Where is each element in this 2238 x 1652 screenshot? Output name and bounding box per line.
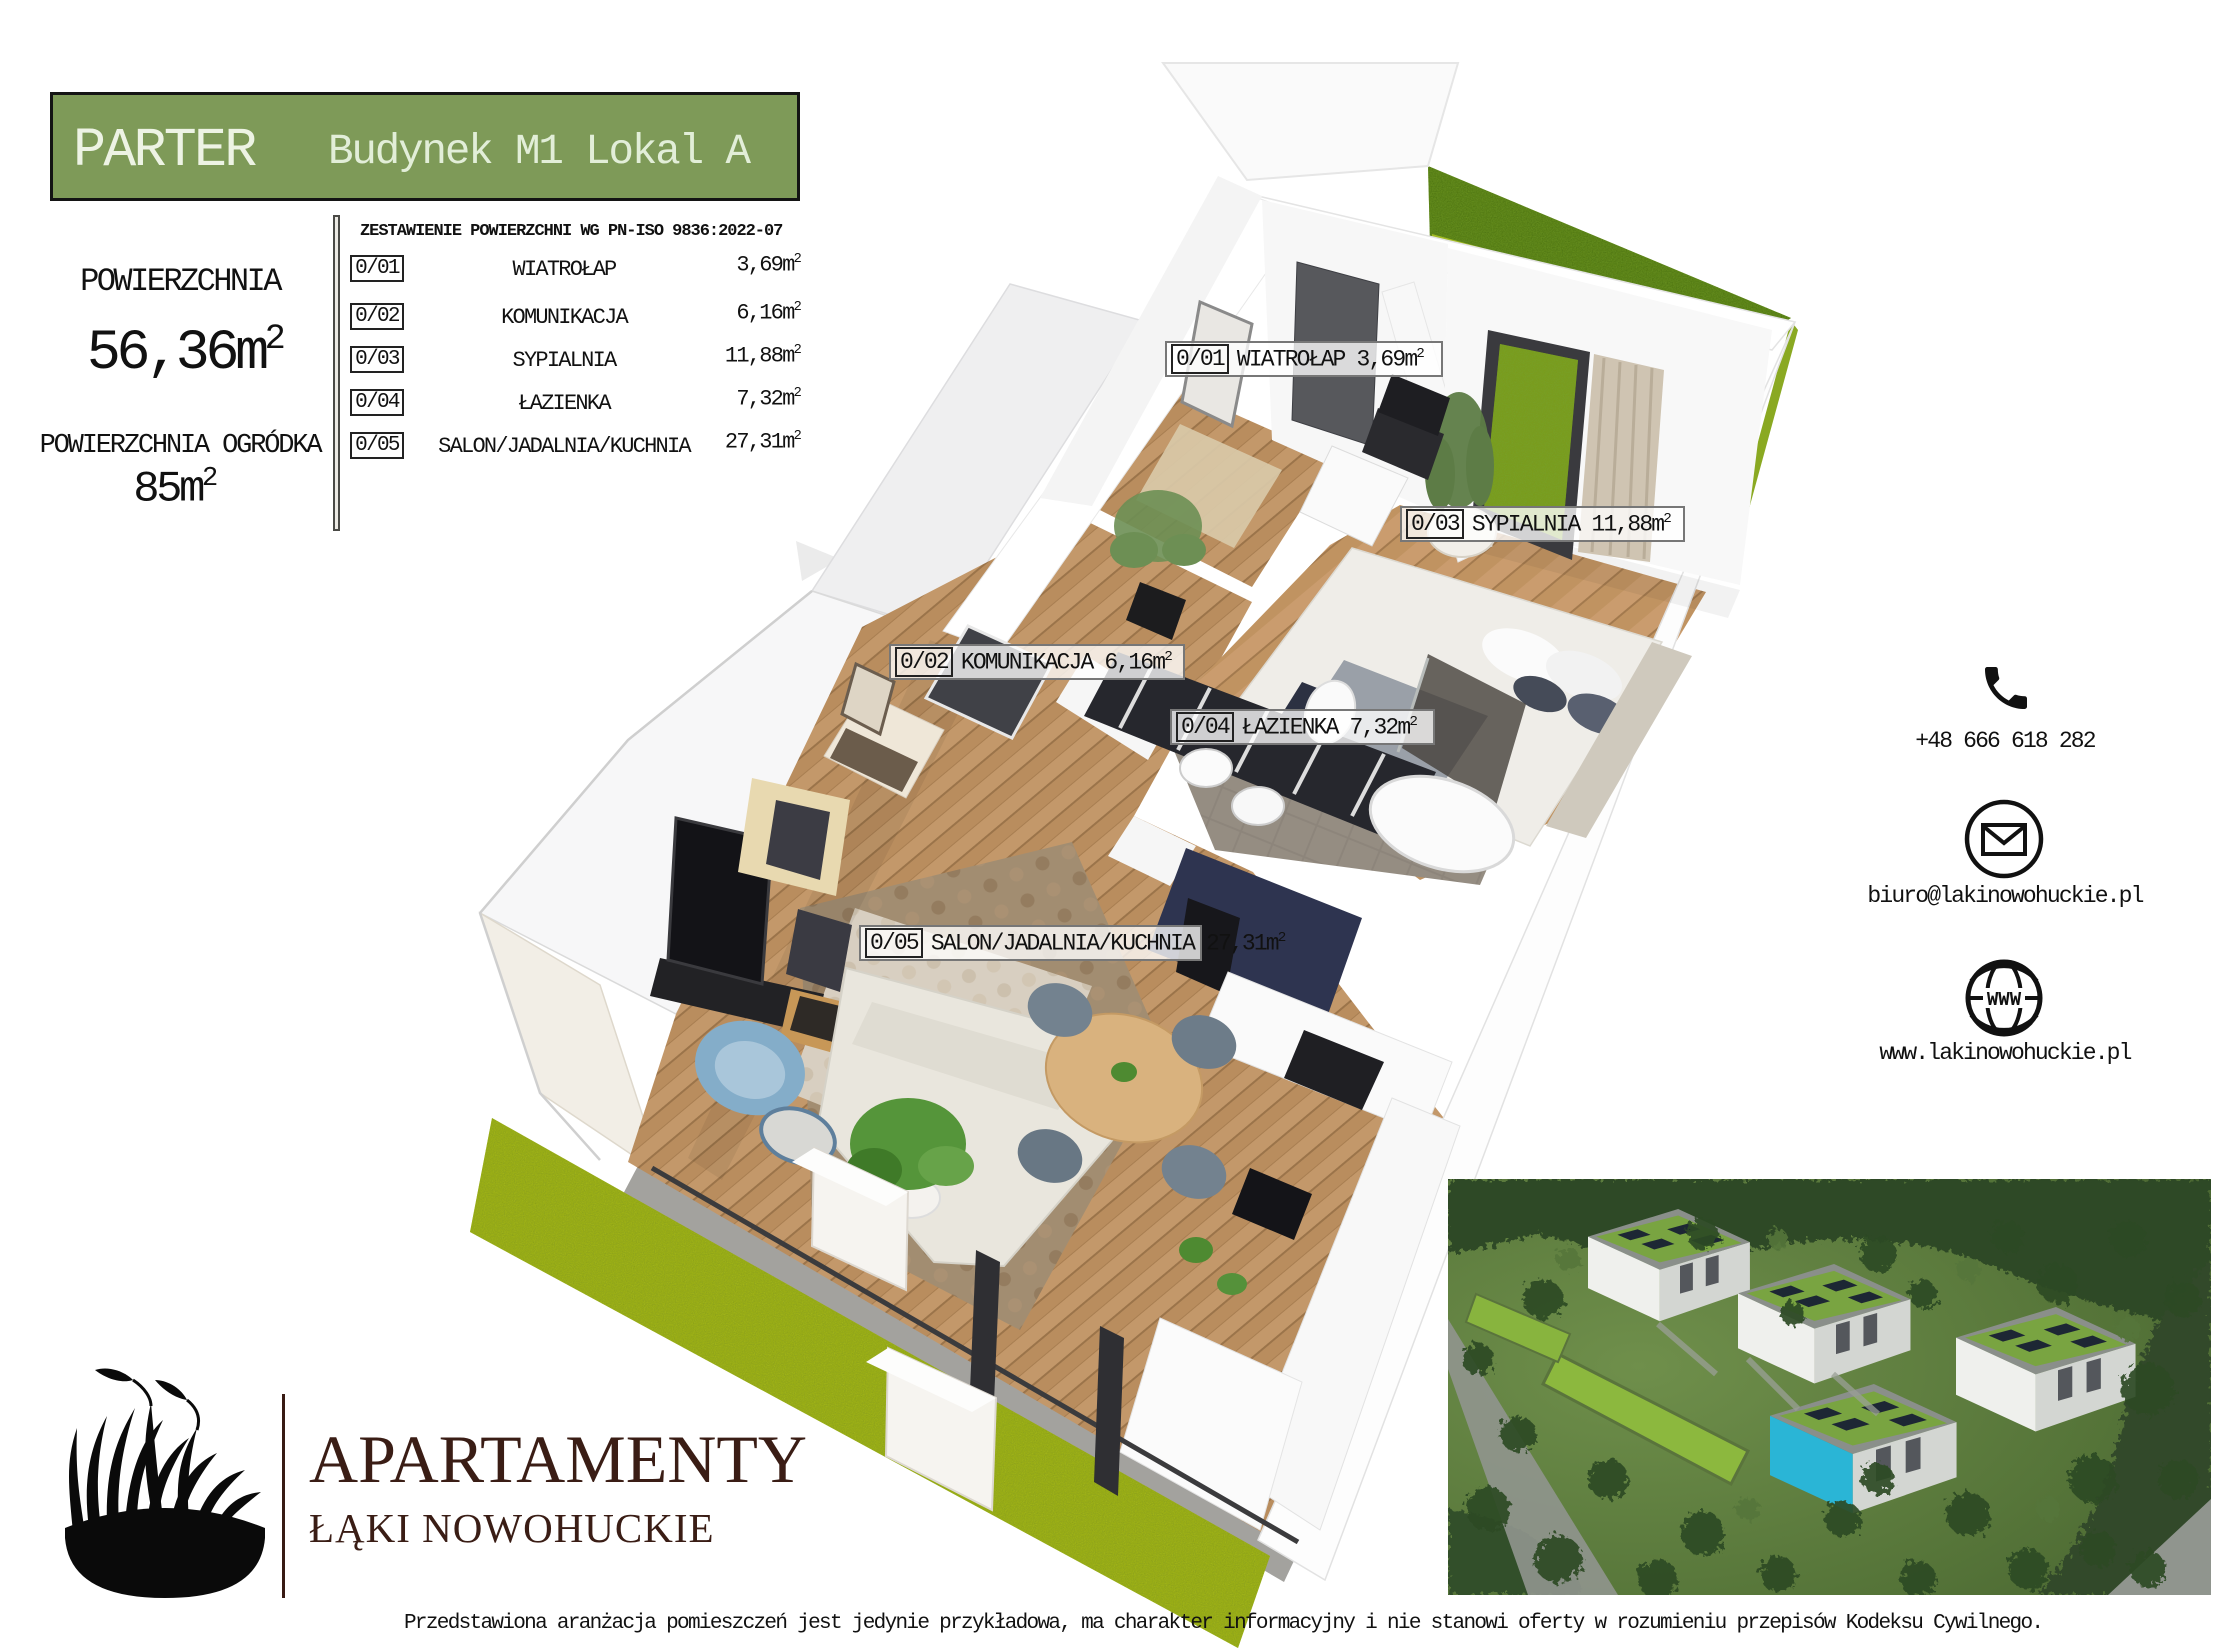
svg-text:WWW: WWW (1987, 989, 2022, 1011)
